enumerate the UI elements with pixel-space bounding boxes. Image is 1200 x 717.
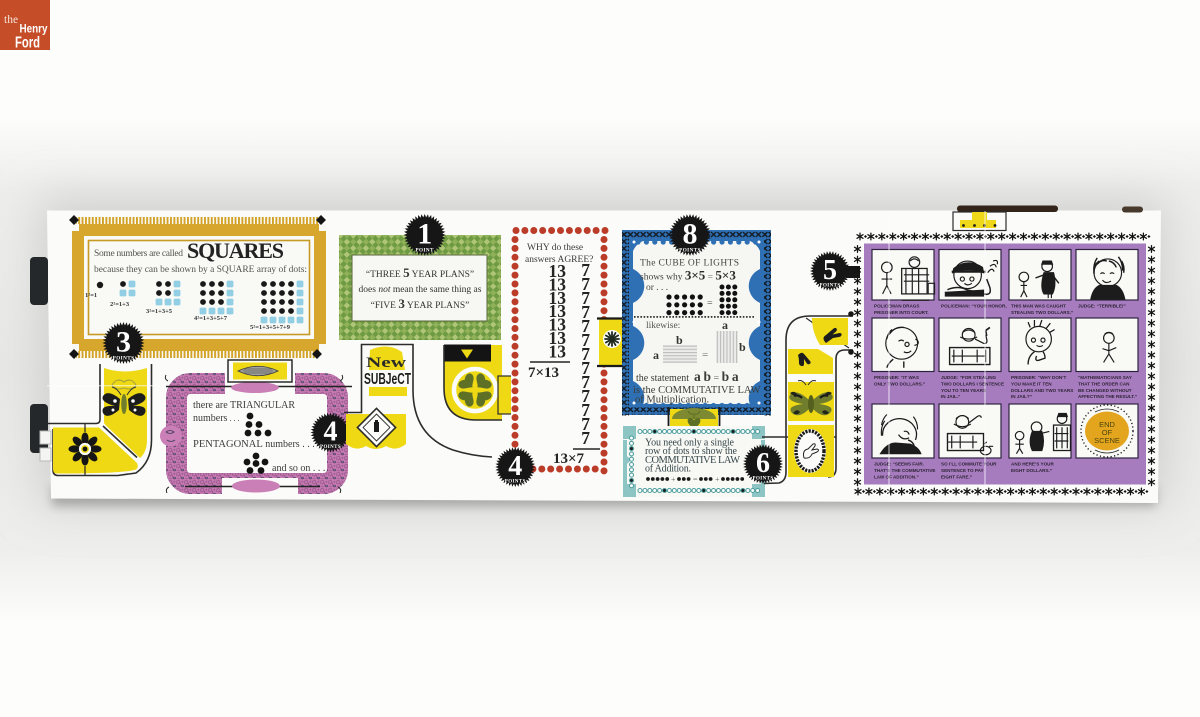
svg-text:SUBJeCT: SUBJeCT (364, 371, 411, 388)
svg-text:YOU MAKE IT TEN: YOU MAKE IT TEN (1011, 381, 1052, 386)
svg-text:THIS MAN WAS CAUGHT: THIS MAN WAS CAUGHT (1011, 304, 1066, 309)
svg-text:Some numbers are called: Some numbers are called (94, 249, 183, 259)
svg-text:SQUARES: SQUARES (187, 238, 284, 263)
svg-text:BE CHANGED WITHOUT: BE CHANGED WITHOUT (1078, 388, 1132, 393)
svg-text:New: New (366, 355, 406, 371)
svg-text:POINTS: POINTS (752, 477, 773, 482)
svg-text:IN JAIL.”: IN JAIL.” (941, 394, 960, 399)
svg-text:2²=1+3: 2²=1+3 (110, 301, 130, 308)
svg-text:ONLY TWO DOLLARS.”: ONLY TWO DOLLARS.” (874, 381, 925, 386)
svg-text:SCENE: SCENE (1094, 436, 1120, 445)
svg-text:“MATHEMATICIANS SAY: “MATHEMATICIANS SAY (1078, 375, 1132, 380)
svg-text:a: a (722, 318, 728, 332)
svg-text:PRISONER: “IT WAS: PRISONER: “IT WAS (874, 375, 919, 380)
svg-text:1²=1: 1²=1 (85, 292, 97, 299)
svg-text:STEALING TWO DOLLARS.”: STEALING TWO DOLLARS.” (1011, 310, 1073, 315)
svg-text:and so on . . .: and so on . . . (272, 463, 325, 474)
svg-text:EIGHT DOLLARS.”: EIGHT DOLLARS.” (1011, 468, 1052, 473)
svg-text:POLICEMAN DRAGS: POLICEMAN DRAGS (874, 304, 919, 309)
svg-text:POINT: POINT (415, 247, 434, 253)
svg-text:TWO DOLLARS I SENTENCE: TWO DOLLARS I SENTENCE (941, 381, 1004, 386)
svg-text:=: = (707, 298, 713, 309)
svg-text:does not mean the same thing a: does not mean the same thing as (359, 285, 482, 295)
svg-text:IN JAIL?”: IN JAIL?” (1011, 394, 1032, 399)
svg-text:JUDGE: “FOR STEALING: JUDGE: “FOR STEALING (941, 375, 997, 380)
svg-text:5²=1+3+5+7+9: 5²=1+3+5+7+9 (250, 324, 291, 331)
svg-text:JUDGE: “SEEMS FAIR.: JUDGE: “SEEMS FAIR. (874, 462, 924, 467)
svg-text:7: 7 (581, 428, 590, 448)
svg-text:YOU TO TEN YEARS: YOU TO TEN YEARS (941, 388, 986, 393)
svg-text:POINTS: POINTS (679, 247, 701, 253)
svg-text:numbers . . .: numbers . . . (193, 413, 239, 424)
svg-text:JUDGE: “TERRIBLE!”: JUDGE: “TERRIBLE!” (1078, 304, 1126, 309)
svg-text:5: 5 (823, 255, 837, 286)
svg-text:POINTS: POINTS (505, 480, 526, 485)
svg-text:b: b (739, 340, 746, 354)
svg-text:b: b (676, 333, 683, 347)
svg-text:+: + (671, 475, 676, 484)
svg-text:POINTS: POINTS (320, 445, 341, 450)
svg-text:THAT’S THE COMMUTATIVE: THAT’S THE COMMUTATIVE (874, 468, 936, 473)
svg-text:POINTS: POINTS (113, 355, 135, 361)
svg-text:PENTAGONAL numbers . . .: PENTAGONAL numbers . . . (193, 439, 315, 450)
svg-text:4²=1+3+5+7: 4²=1+3+5+7 (194, 315, 228, 322)
svg-text:DOLLARS AND TWO YEARS: DOLLARS AND TWO YEARS (1011, 388, 1073, 393)
svg-text:LAW OF ADDITION.”: LAW OF ADDITION.” (874, 474, 919, 479)
svg-text:13×7: 13×7 (553, 451, 585, 467)
svg-text:PRISONER INTO COURT.: PRISONER INTO COURT. (874, 310, 929, 315)
svg-text:4: 4 (508, 451, 522, 482)
svg-text:=: = (693, 475, 698, 484)
svg-text:7×13: 7×13 (528, 365, 559, 381)
svg-text:4: 4 (324, 416, 338, 447)
svg-text:or . . .: or . . . (646, 283, 668, 293)
svg-text:of Multiplication.: of Multiplication. (635, 395, 709, 406)
svg-text:3²=1+3+5: 3²=1+3+5 (146, 308, 173, 315)
svg-text:Ford: Ford (15, 35, 40, 52)
svg-text:EIGHT FARE.”: EIGHT FARE.” (941, 474, 972, 479)
svg-text:+: + (715, 475, 720, 484)
svg-text:1: 1 (417, 217, 432, 250)
svg-text:6: 6 (756, 448, 770, 479)
svg-text:=: = (702, 349, 708, 361)
svg-text:the: the (4, 14, 18, 26)
svg-text:POINTS: POINTS (819, 284, 840, 289)
svg-text:3: 3 (116, 325, 131, 358)
svg-text:PRISONER: “WHY DON’T: PRISONER: “WHY DON’T (1011, 375, 1066, 380)
svg-text:there are TRIANGULAR: there are TRIANGULAR (193, 400, 295, 411)
svg-text:13: 13 (549, 341, 567, 361)
svg-text:of Addition.: of Addition. (645, 464, 691, 475)
svg-text:because they can be shown by a: because they can be shown by a SQUARE ar… (94, 264, 307, 275)
svg-text:likewise:: likewise: (646, 321, 680, 331)
svg-text:WHY do these: WHY do these (527, 243, 583, 253)
svg-text:THAT THE ORDER CAN: THAT THE ORDER CAN (1078, 381, 1130, 386)
svg-text:AND HERE’S YOUR: AND HERE’S YOUR (1011, 462, 1054, 467)
svg-text:AFFECTING THE RESULT.”: AFFECTING THE RESULT.” (1078, 394, 1137, 399)
svg-text:SENTENCE TO PAY: SENTENCE TO PAY (941, 468, 984, 473)
svg-text:POLICEMAN: “YOUR HONOR,: POLICEMAN: “YOUR HONOR, (941, 304, 1007, 309)
svg-text:SO I’LL COMMUTE YOUR: SO I’LL COMMUTE YOUR (941, 462, 997, 467)
svg-text:a: a (653, 348, 659, 362)
svg-text:8: 8 (683, 217, 698, 250)
